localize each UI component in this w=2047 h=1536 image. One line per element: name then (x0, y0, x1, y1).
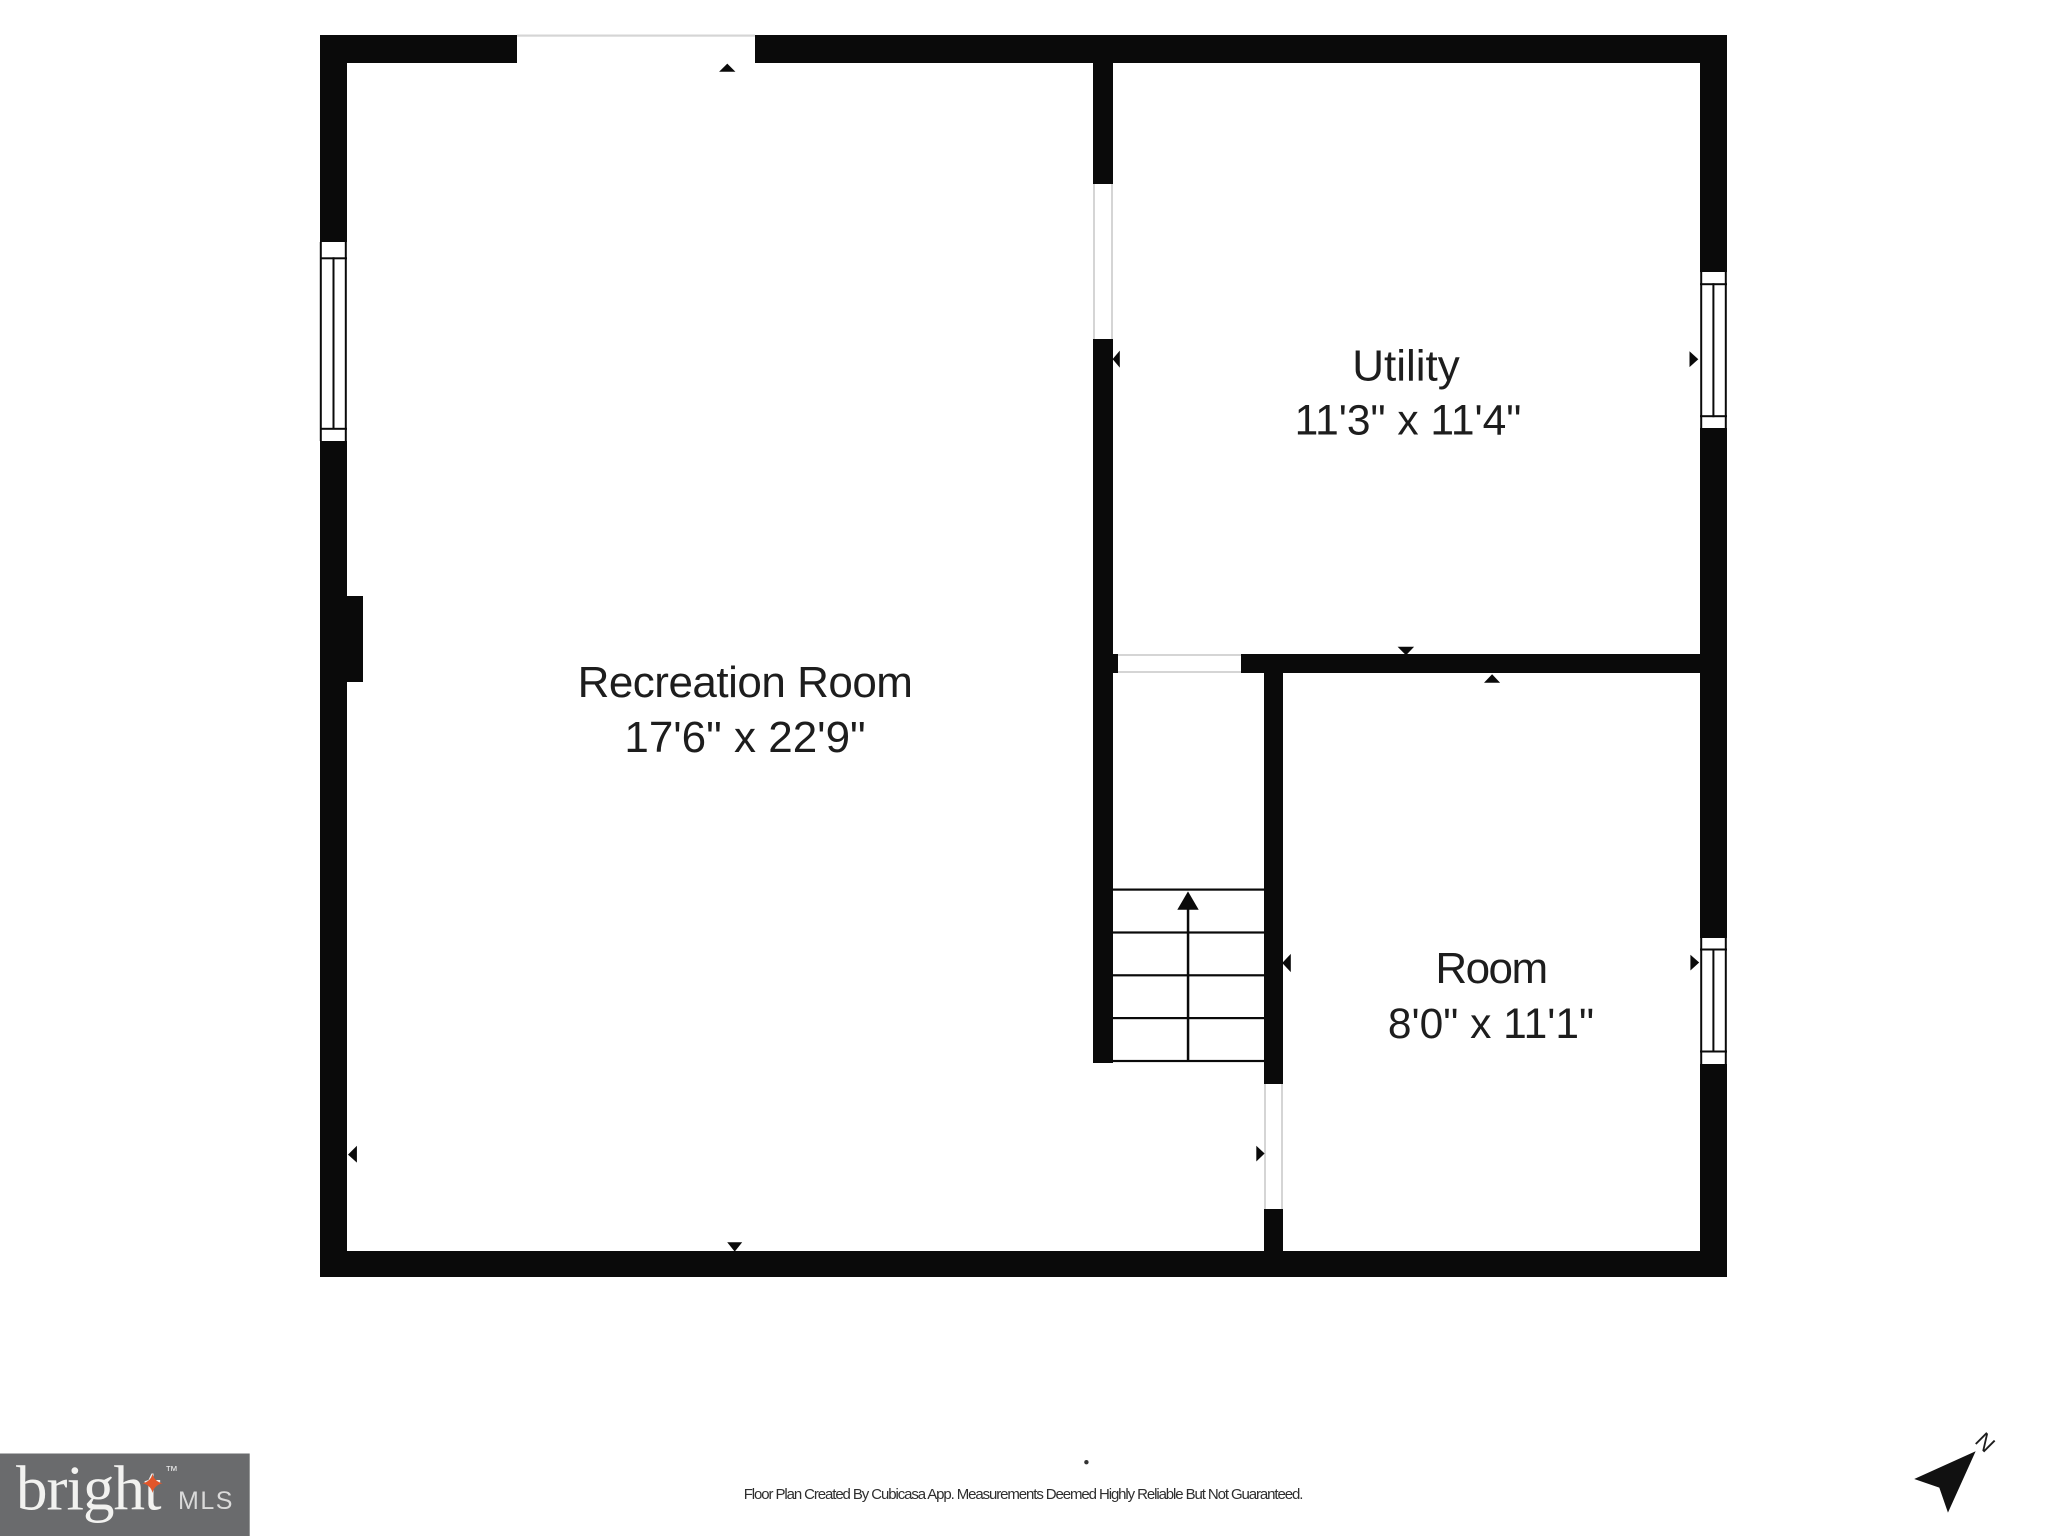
svg-text:Room: Room (1435, 944, 1546, 993)
svg-text:8'0" x 11'1": 8'0" x 11'1" (1388, 1001, 1594, 1048)
svg-text:bright: bright (16, 1454, 162, 1524)
svg-text:Recreation Room: Recreation Room (578, 658, 913, 707)
svg-text:11'3" x 11'4": 11'3" x 11'4" (1295, 398, 1522, 445)
svg-text:Floor Plan Created By Cubicasa: Floor Plan Created By Cubicasa App. Meas… (744, 1486, 1303, 1503)
svg-text:17'6" x 22'9": 17'6" x 22'9" (624, 713, 865, 762)
svg-text:MLS: MLS (178, 1487, 234, 1515)
svg-text:™: ™ (165, 1463, 178, 1478)
svg-text:Utility: Utility (1352, 342, 1460, 391)
